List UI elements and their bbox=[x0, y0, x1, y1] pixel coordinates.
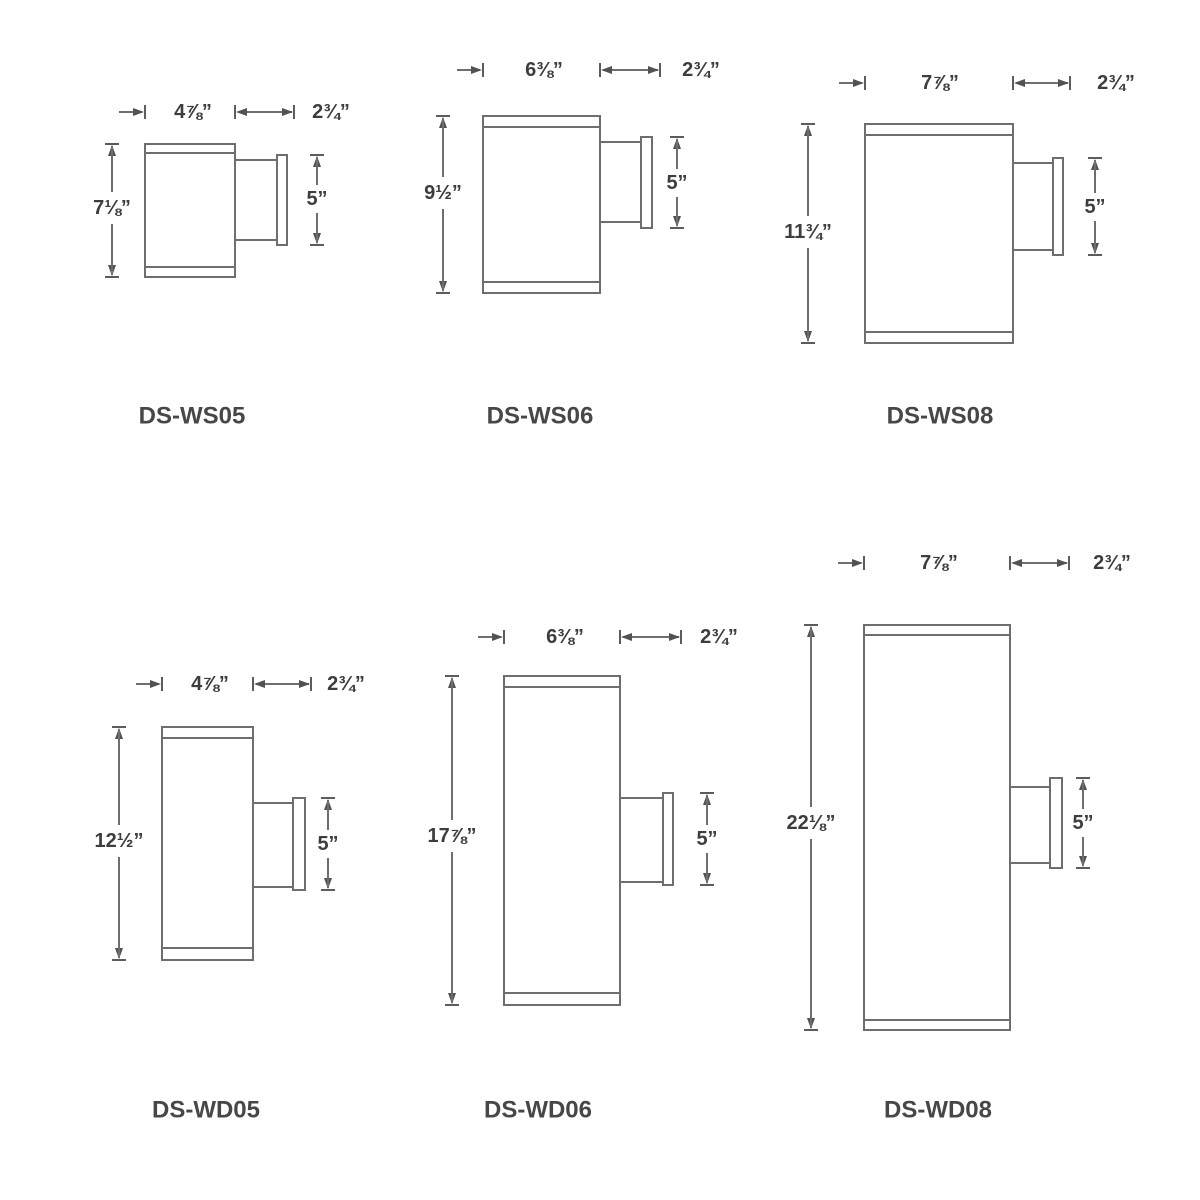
height-dimension-label: 11¾” bbox=[784, 221, 832, 243]
dimension-arrow bbox=[236, 108, 247, 116]
dimension-arrow bbox=[254, 680, 265, 688]
fixture-diagram-DS-WS06: 6⅜”2¾”9½”5”DS-WS06 bbox=[424, 59, 720, 430]
width-dimension-label: 6⅜” bbox=[546, 626, 584, 648]
width-dimension-label: 4⅞” bbox=[191, 673, 229, 695]
height-dimension-label: 7⅛” bbox=[93, 197, 131, 219]
depth-dimension-label: 2¾” bbox=[682, 59, 720, 81]
model-label: DS-WS06 bbox=[487, 403, 594, 430]
fixture-body bbox=[504, 676, 620, 1005]
wall-backplate bbox=[1053, 158, 1063, 255]
mount-arm bbox=[620, 798, 663, 882]
width-dimension-label: 7⅞” bbox=[920, 552, 958, 574]
mount-arm bbox=[1010, 787, 1050, 863]
dimension-arrow bbox=[621, 633, 632, 641]
model-label: DS-WD06 bbox=[484, 1097, 592, 1124]
dimension-arrow bbox=[299, 680, 310, 688]
width-dimension-label: 7⅞” bbox=[921, 72, 959, 94]
mount-arm bbox=[235, 160, 277, 240]
fixture-diagram-DS-WD05: 4⅞”2¾”12½”5”DS-WD05 bbox=[95, 673, 365, 1124]
model-label: DS-WS05 bbox=[139, 403, 246, 430]
height-dimension-label: 9½” bbox=[424, 182, 462, 204]
model-label: DS-WS08 bbox=[887, 403, 994, 430]
dimension-arrow bbox=[1058, 79, 1069, 87]
width-dimension-label: 6⅜” bbox=[525, 59, 563, 81]
backplate-dimension-label: 5” bbox=[1072, 812, 1093, 834]
fixture-body bbox=[483, 116, 600, 293]
height-dimension-label: 22⅛” bbox=[787, 812, 836, 834]
mount-arm bbox=[600, 142, 641, 222]
model-label: DS-WD05 bbox=[152, 1097, 260, 1124]
dimension-arrow bbox=[852, 559, 863, 567]
depth-dimension-label: 2¾” bbox=[1097, 72, 1135, 94]
depth-dimension-label: 2¾” bbox=[1093, 552, 1131, 574]
backplate-dimension-label: 5” bbox=[1084, 196, 1105, 218]
fixture-body bbox=[145, 144, 235, 277]
mount-arm bbox=[253, 803, 293, 887]
fixture-diagram-DS-WS08: 7⅞”2¾”11¾”5”DS-WS08 bbox=[784, 72, 1135, 430]
dimension-arrow bbox=[133, 108, 144, 116]
dimension-arrow bbox=[853, 79, 864, 87]
fixture-diagram-DS-WS05: 4⅞”2¾”7⅛”5”DS-WS05 bbox=[93, 101, 350, 430]
depth-dimension-label: 2¾” bbox=[312, 101, 350, 123]
dimension-arrow bbox=[1014, 79, 1025, 87]
fixture-diagram-DS-WD08: 7⅞”2¾”22⅛”5”DS-WD08 bbox=[787, 552, 1131, 1124]
backplate-dimension-label: 5” bbox=[666, 172, 687, 194]
backplate-dimension-label: 5” bbox=[317, 833, 338, 855]
wall-backplate bbox=[1050, 778, 1062, 868]
fixture-body bbox=[864, 625, 1010, 1030]
dimension-arrow bbox=[492, 633, 503, 641]
dimension-arrow bbox=[471, 66, 482, 74]
wall-backplate bbox=[293, 798, 305, 890]
backplate-dimension-label: 5” bbox=[696, 828, 717, 850]
depth-dimension-label: 2¾” bbox=[700, 626, 738, 648]
spec-diagram-canvas: 4⅞”2¾”7⅛”5”DS-WS056⅜”2¾”9½”5”DS-WS067⅞”2… bbox=[0, 0, 1200, 1200]
width-dimension-label: 4⅞” bbox=[174, 101, 212, 123]
dimension-arrow bbox=[1057, 559, 1068, 567]
fixture-body bbox=[162, 727, 253, 960]
model-label: DS-WD08 bbox=[884, 1097, 992, 1124]
dimension-arrow bbox=[648, 66, 659, 74]
depth-dimension-label: 2¾” bbox=[327, 673, 365, 695]
dimension-arrow bbox=[282, 108, 293, 116]
height-dimension-label: 17⅞” bbox=[428, 825, 477, 847]
dimension-arrow bbox=[669, 633, 680, 641]
wall-backplate bbox=[277, 155, 287, 245]
wall-backplate bbox=[641, 137, 652, 228]
dimension-arrow bbox=[601, 66, 612, 74]
wall-backplate bbox=[663, 793, 673, 885]
height-dimension-label: 12½” bbox=[95, 830, 144, 852]
dimension-arrow bbox=[150, 680, 161, 688]
mount-arm bbox=[1013, 163, 1053, 250]
dimension-arrow bbox=[1011, 559, 1022, 567]
backplate-dimension-label: 5” bbox=[306, 188, 327, 210]
fixture-diagram-DS-WD06: 6⅜”2¾”17⅞”5”DS-WD06 bbox=[428, 626, 738, 1124]
fixture-body bbox=[865, 124, 1013, 343]
wall-sconce-spec-sheet: 4⅞”2¾”7⅛”5”DS-WS056⅜”2¾”9½”5”DS-WS067⅞”2… bbox=[0, 0, 1200, 1200]
